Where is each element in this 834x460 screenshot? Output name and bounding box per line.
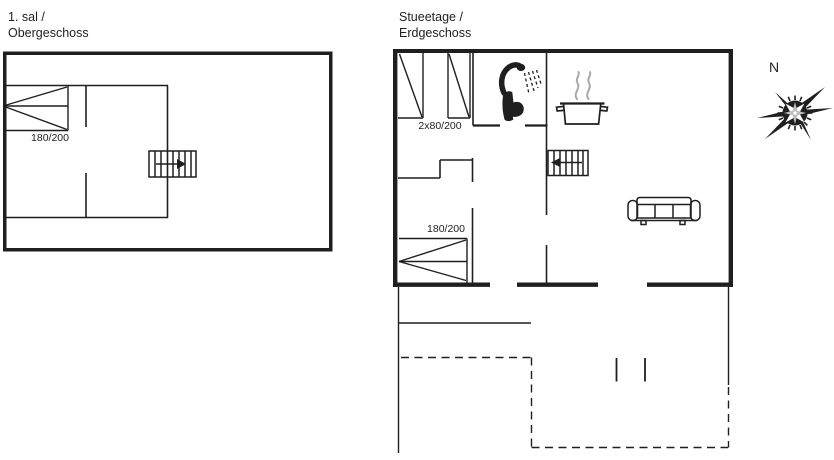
shower-icon (502, 64, 541, 94)
roof-window-icon (3, 86, 68, 131)
window-icon-top (398, 53, 470, 118)
toilet-icon (502, 91, 523, 121)
ground-bottom-window-dimension-label: 180/200 (421, 223, 471, 235)
compass-north-label: N (769, 59, 779, 75)
upper-floor-plan (3, 53, 331, 250)
compass-rose-icon (757, 87, 833, 140)
ground-plan-title-line2: Erdgeschoss (399, 25, 471, 41)
ground-plan-title-line1: Stueetage / (399, 9, 463, 25)
upper-window-dimension-label: 180/200 (25, 132, 75, 144)
window-icon-bottom (399, 239, 467, 283)
ground-floor-plan (393, 49, 733, 453)
ground-interior-walls (398, 53, 548, 283)
upper-plan-title-line2: Obergeschoss (8, 25, 89, 41)
floorplan-page: 1. sal / Obergeschoss Stueetage / Erdges… (0, 0, 834, 460)
terrace-dashed-outline (399, 287, 729, 453)
steam-icon (576, 72, 591, 99)
stairs-arrow-left-icon (548, 151, 588, 176)
cooking-pot-icon (557, 72, 608, 124)
ground-outer-walls (393, 49, 733, 287)
ground-top-windows-dimension-label: 2x80/200 (412, 120, 468, 132)
floorplan-drawing (0, 0, 834, 460)
sofa-icon (628, 198, 700, 225)
stairs-arrow-right-icon (149, 151, 196, 177)
upper-plan-title-line1: 1. sal / (8, 9, 45, 25)
